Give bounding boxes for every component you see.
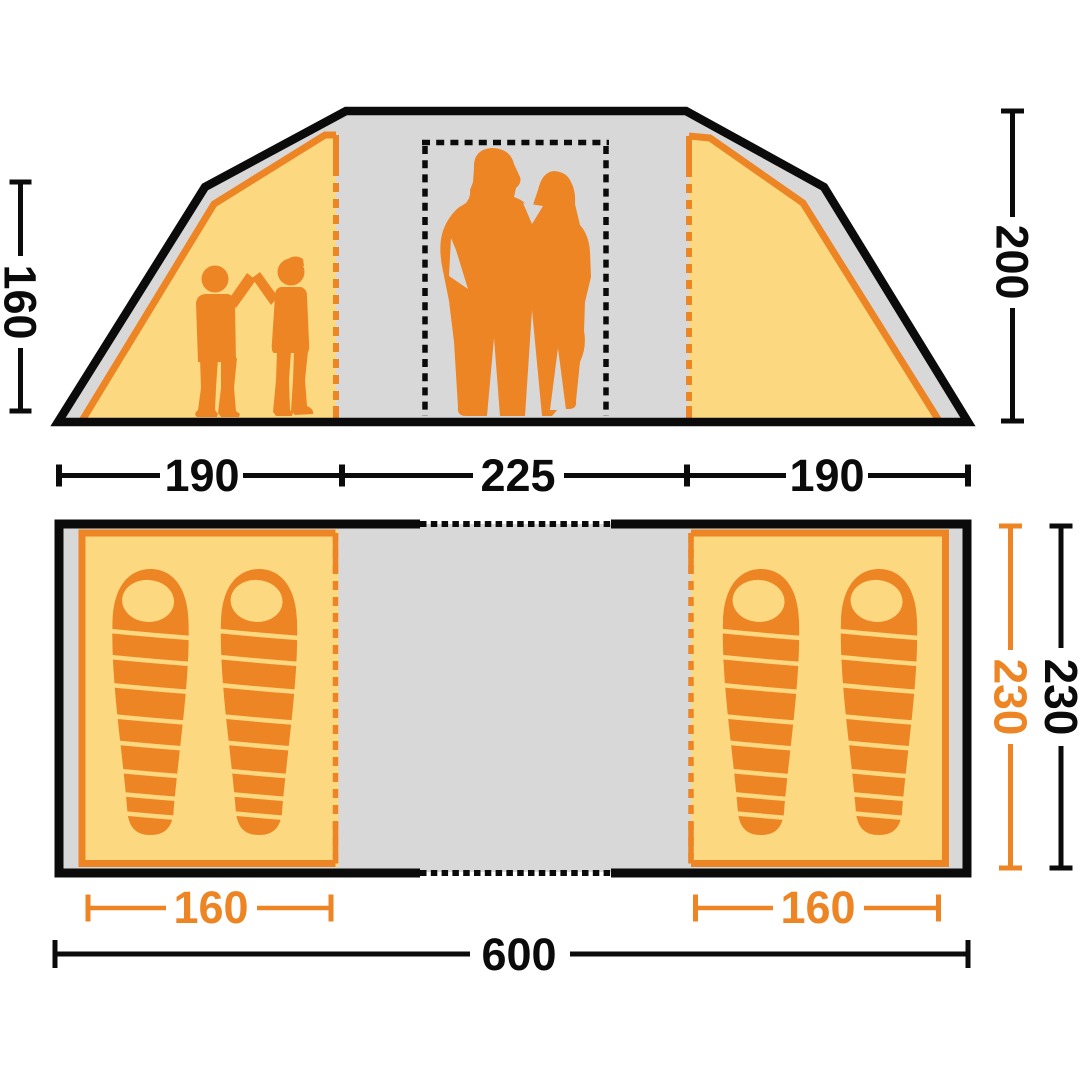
svg-text:160: 160 — [780, 882, 855, 933]
svg-text:200: 200 — [987, 224, 1038, 299]
svg-text:160: 160 — [173, 882, 248, 933]
svg-text:230: 230 — [1035, 659, 1080, 736]
svg-text:600: 600 — [481, 929, 556, 980]
svg-text:190: 190 — [789, 450, 864, 501]
svg-text:190: 190 — [164, 450, 239, 501]
svg-text:225: 225 — [480, 450, 555, 501]
svg-text:230: 230 — [985, 659, 1037, 736]
svg-text:160: 160 — [0, 264, 46, 339]
